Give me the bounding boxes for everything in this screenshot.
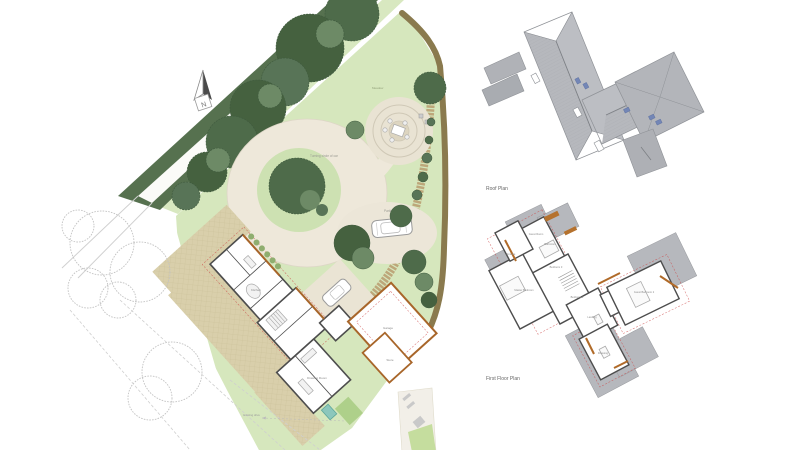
room-label-bathroom: Bathroom [544, 242, 555, 246]
garden-tree-icon [414, 72, 446, 104]
turning-circle-label: Turning circle of car [310, 154, 339, 158]
room-label-landing: Landing [587, 315, 597, 319]
room-label-guest-room: Guest Room [529, 232, 544, 236]
first-floor-plan-caption: First Floor Plan [486, 376, 520, 382]
meadow-label: Meadow [372, 86, 384, 90]
room-label-bedroom-3: Bedroom 3 [550, 265, 563, 269]
room-label-guest-bedroom-2: Guest Bedroom 2 [634, 290, 655, 294]
architectural-drawing-sheet: Bridleway Drive Meadow Turning circle of… [0, 0, 800, 450]
site-plan: Bridleway Drive Meadow Turning circle of… [55, 0, 447, 450]
entrance-drive [398, 388, 436, 450]
room-label-ensuite: Ensuite [507, 252, 516, 256]
patio [365, 97, 433, 165]
room-label-bedroom-2: Bedroom 2 [571, 295, 584, 299]
planter-icon [419, 114, 423, 118]
drawing-room-label: Drawing Room [307, 376, 327, 380]
store-label: Store [386, 358, 394, 362]
roof-plan-caption: Roof Plan [486, 186, 508, 192]
first-floor-plan: Guest Room Ensuite Bathroom Bedroom 3 Ma… [485, 203, 697, 398]
roof-plan: Roof Plan [482, 12, 704, 192]
plan-drawing: Bridleway Drive Meadow Turning circle of… [0, 0, 800, 450]
room-label-dressing: Dressing [598, 351, 609, 355]
north-arrow-icon: N [194, 70, 212, 111]
room-label-master-bedroom: Master Bedroom [514, 288, 533, 292]
garage-label: Garage [383, 326, 393, 330]
existing-drive-label: Existing drive [243, 413, 260, 417]
kitchen-label: Kitchen [251, 288, 261, 292]
